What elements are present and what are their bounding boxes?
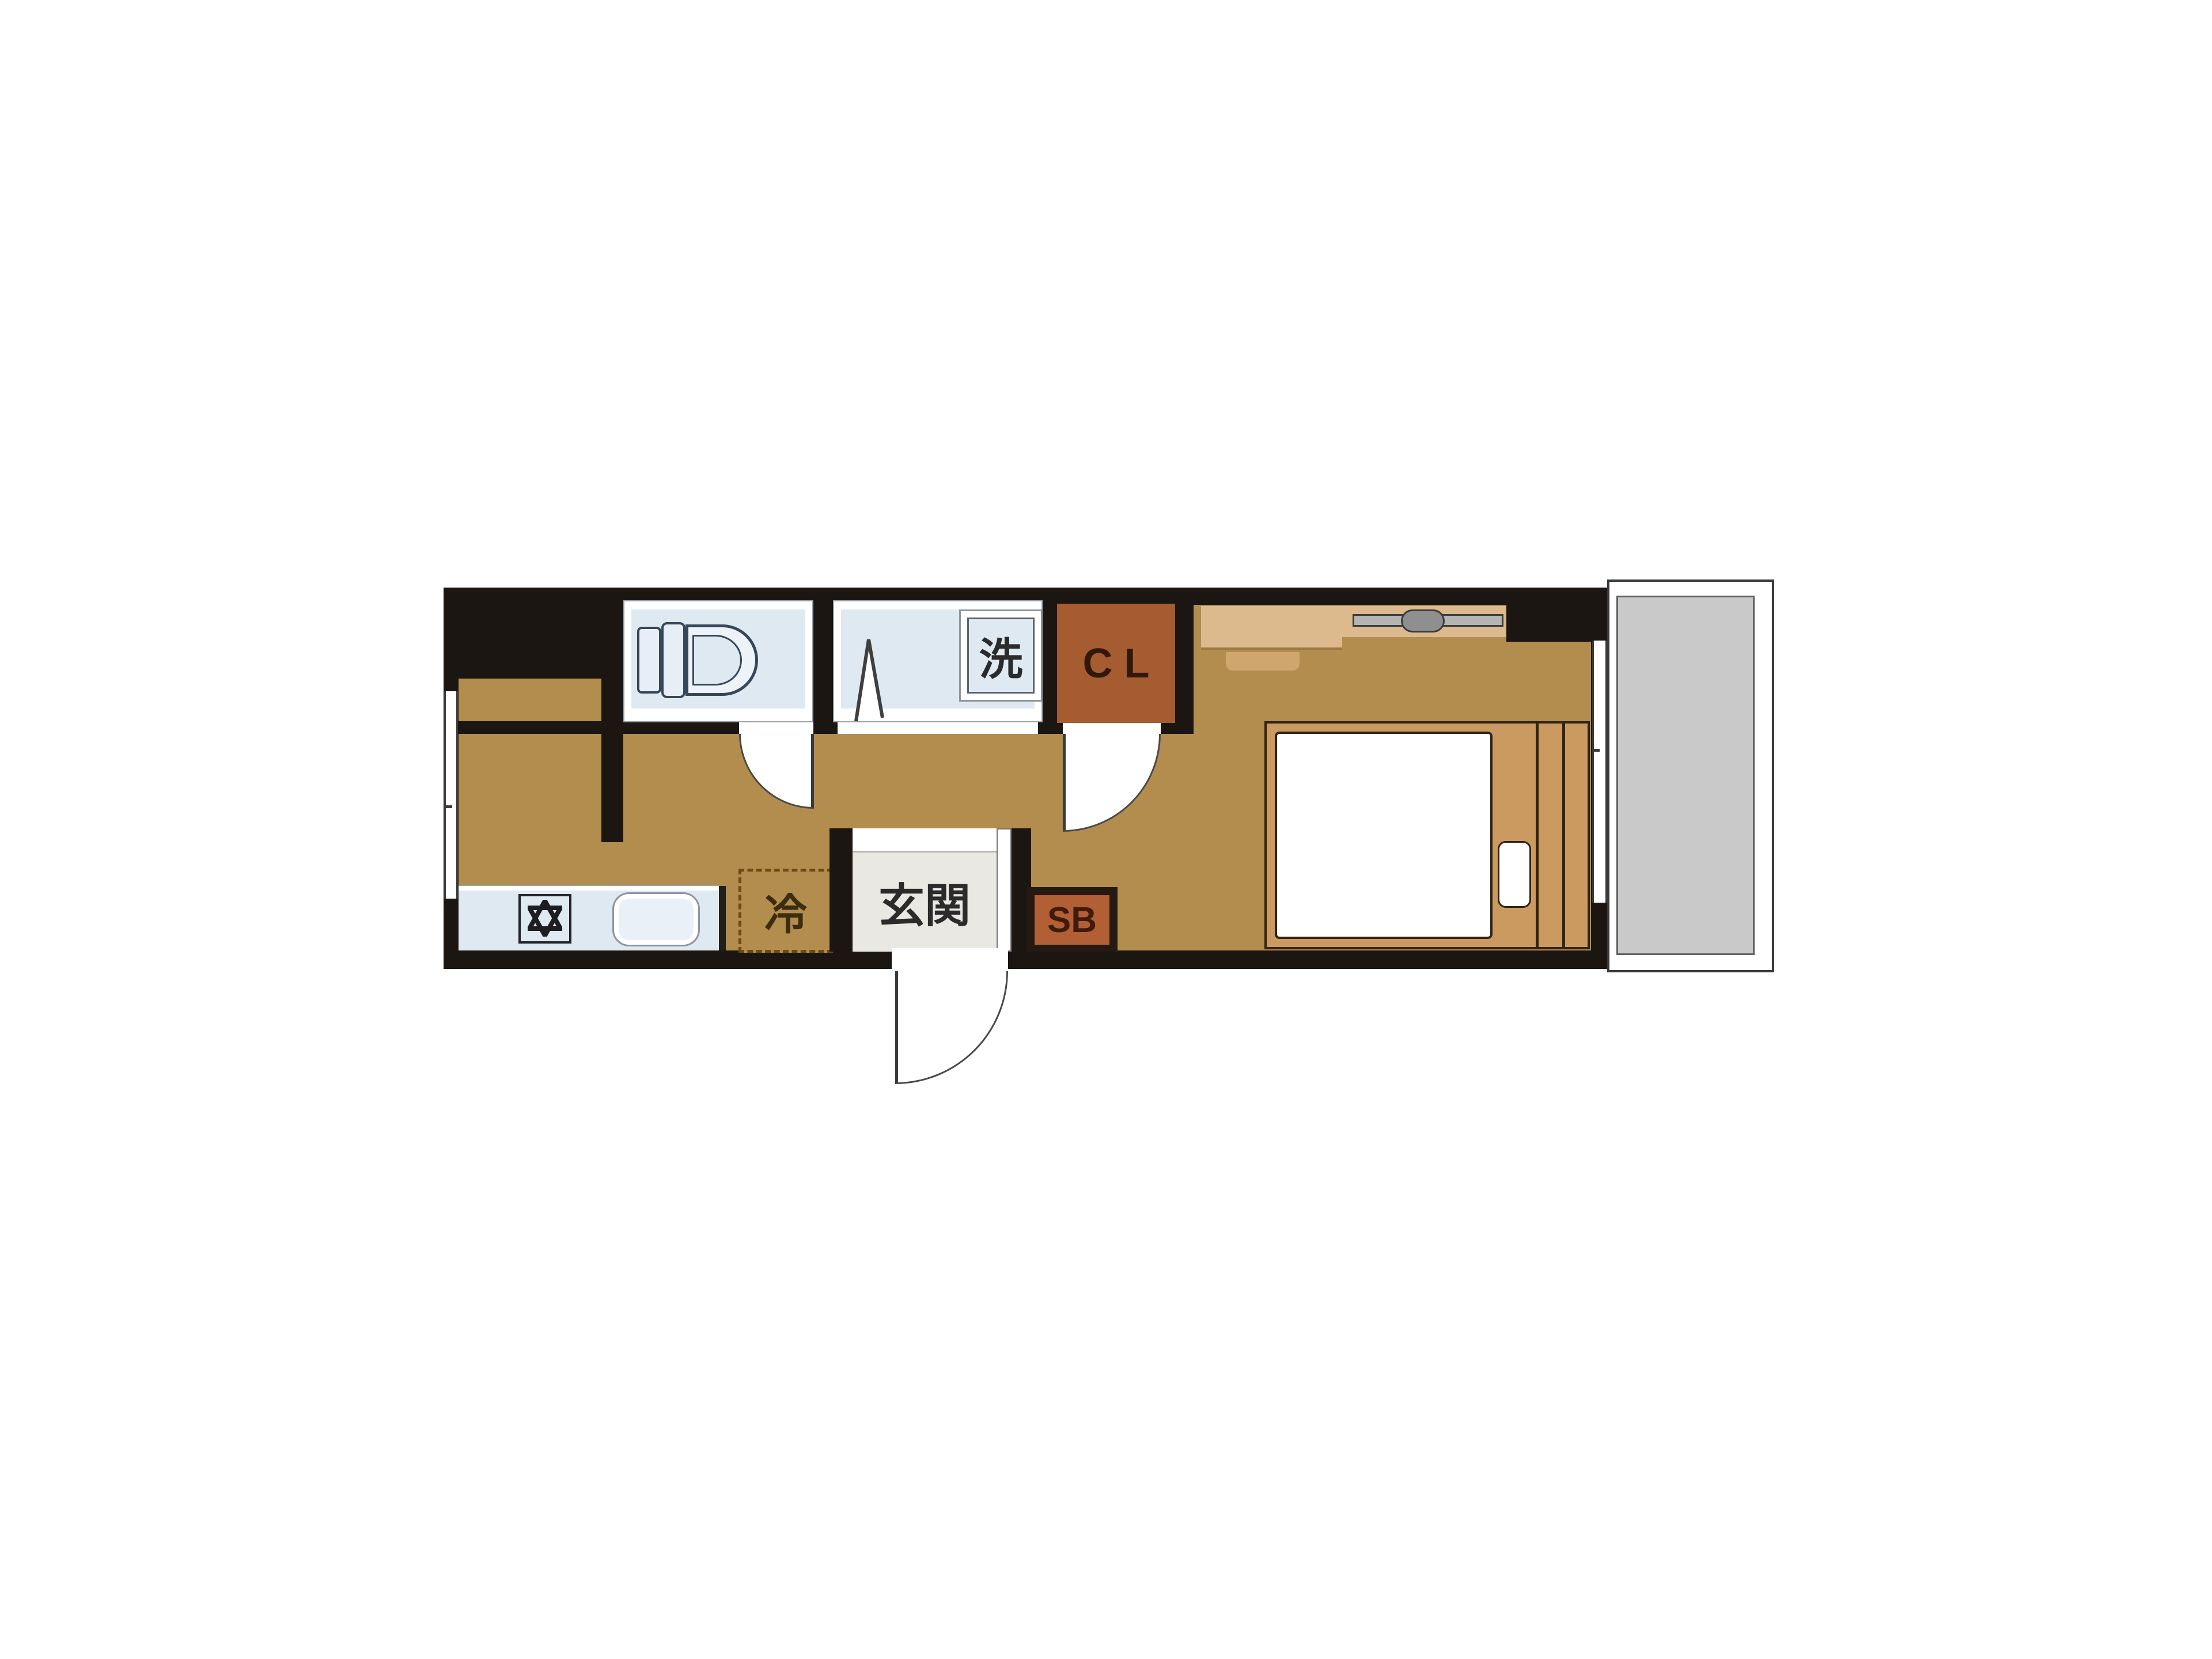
bed xyxy=(1264,721,1590,949)
sink-icon xyxy=(614,894,698,945)
window-left-tick xyxy=(444,805,452,808)
kitchen-counter-edge xyxy=(719,886,726,950)
wall-toilet-washroom xyxy=(813,588,833,734)
entrance-door-jamb xyxy=(997,828,1012,952)
entrance-floor-area: 玄関 xyxy=(853,853,997,952)
bed-mattress xyxy=(1275,732,1493,939)
toilet-tank xyxy=(637,627,661,694)
bed-slat-2 xyxy=(1562,724,1565,947)
closet: CL xyxy=(1057,604,1175,723)
folding-door-icon xyxy=(846,634,892,726)
refrigerator-space: 冷 xyxy=(738,869,833,953)
washing-machine-label: 洗 xyxy=(967,618,1035,694)
desk-chair xyxy=(1226,652,1300,671)
balcony-deck xyxy=(1616,596,1755,955)
hanger-rail-slider xyxy=(1401,609,1445,632)
entrance-jamb-left xyxy=(829,828,853,952)
entrance-threshold xyxy=(892,948,1008,972)
bed-slat-1 xyxy=(1536,724,1539,947)
closet-doorway xyxy=(1063,721,1161,734)
corner-block-top-left xyxy=(444,588,623,679)
corner-block-top-right xyxy=(1506,588,1607,642)
floor-plan: 洗 CL 冷 玄関 SB xyxy=(0,0,2212,1659)
wall-stub-left xyxy=(601,679,623,842)
entrance-door-swing xyxy=(895,971,1008,1084)
wall-closet-room xyxy=(1175,588,1194,734)
stove-burner-icon xyxy=(528,900,562,937)
bed-pillow xyxy=(1498,841,1531,908)
wall-washroom-closet xyxy=(1043,588,1057,734)
wall-bottom xyxy=(444,950,1607,969)
window-balcony-tick xyxy=(1592,749,1600,752)
toilet-doorway xyxy=(739,721,814,734)
window-balcony xyxy=(1592,641,1607,903)
entrance-step xyxy=(853,828,997,853)
window-left xyxy=(444,691,458,899)
desk-counter xyxy=(1201,606,1342,650)
shoe-box: SB xyxy=(1035,895,1109,945)
toilet-seat xyxy=(661,622,685,698)
toilet-icon xyxy=(637,622,759,698)
